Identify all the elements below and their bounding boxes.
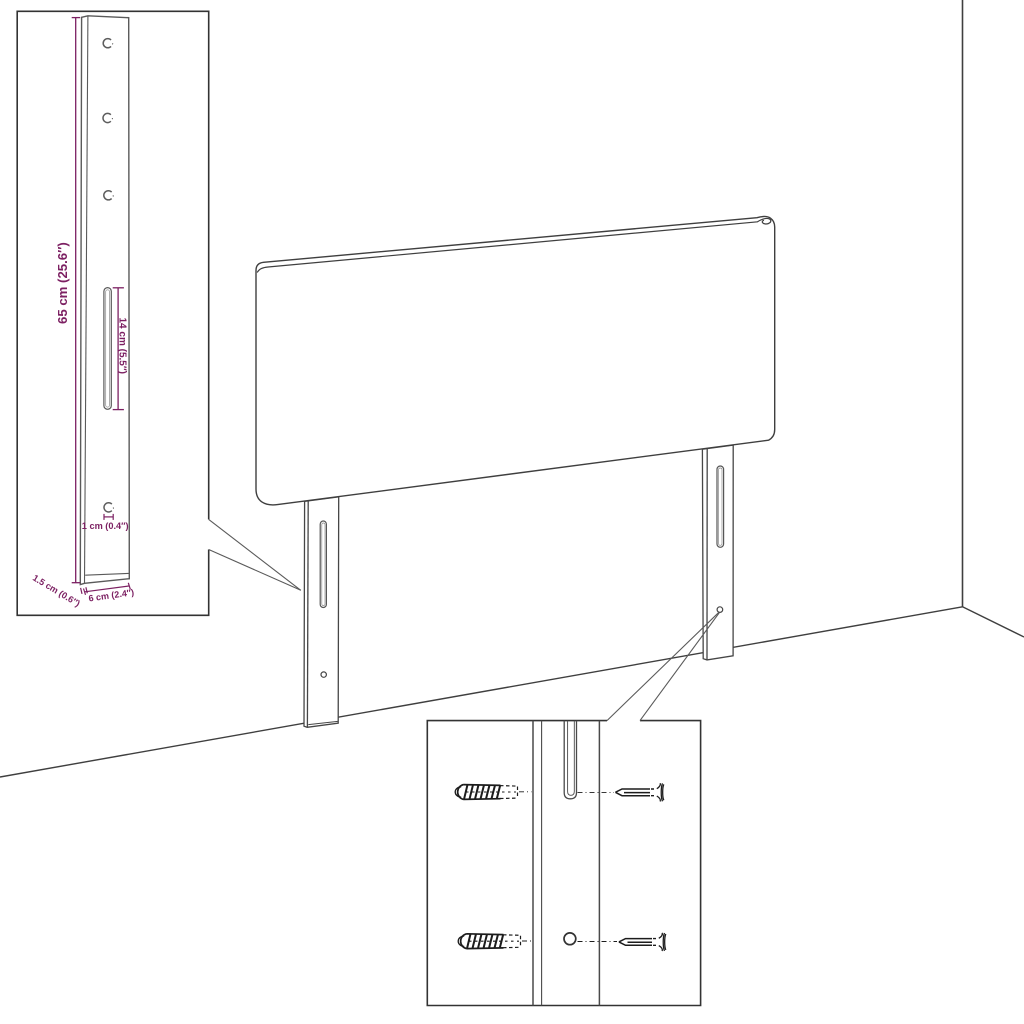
svg-text:1 cm (0.4″): 1 cm (0.4″) [82, 521, 129, 531]
svg-text:14 cm (5.5″): 14 cm (5.5″) [117, 318, 128, 374]
svg-text:65 cm (25.6″): 65 cm (25.6″) [55, 242, 70, 324]
